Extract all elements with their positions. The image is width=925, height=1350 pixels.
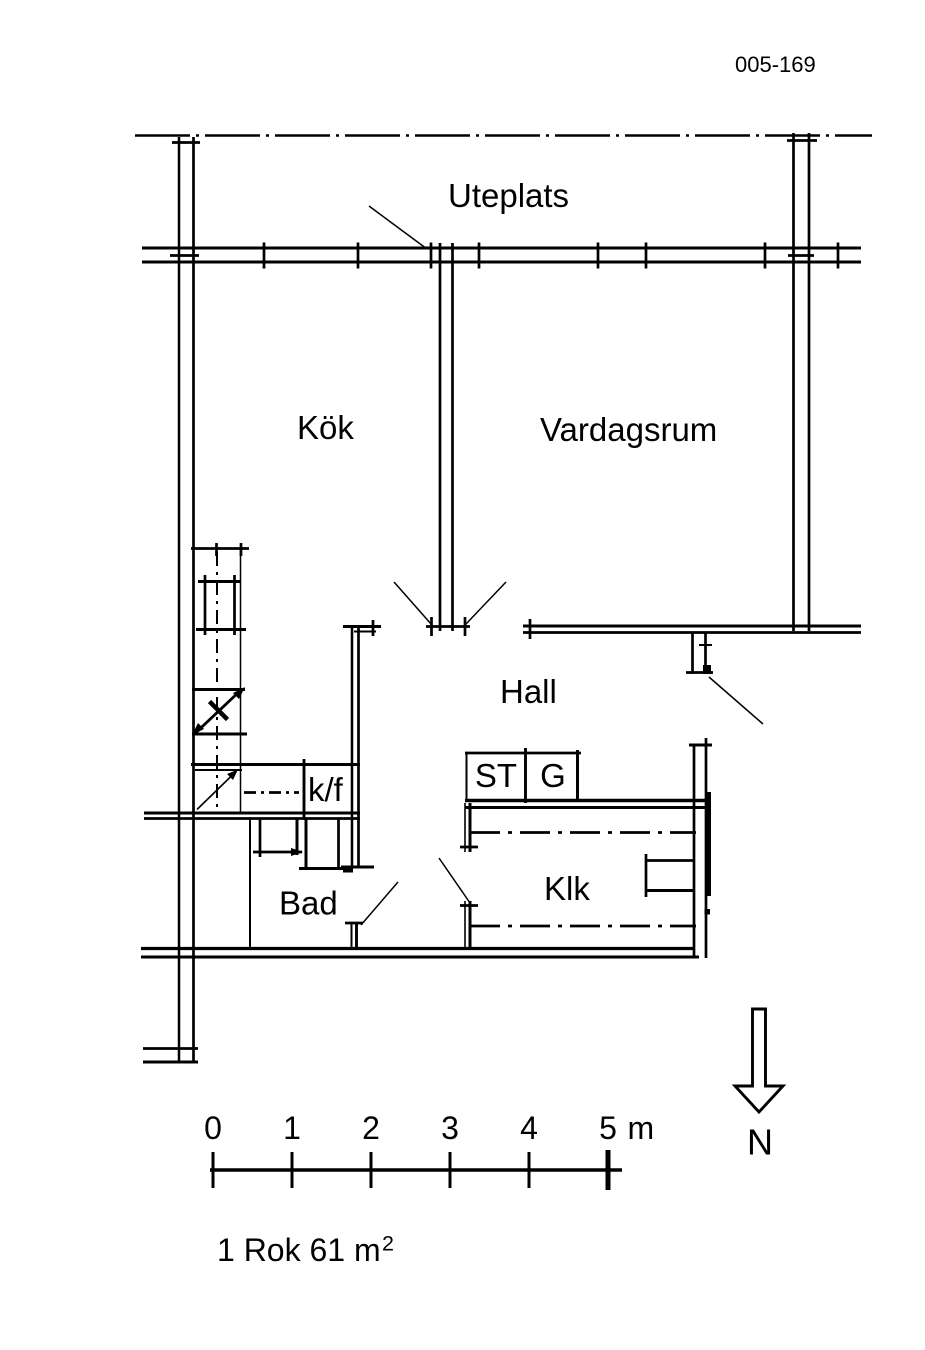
svg-text:k/f: k/f bbox=[308, 771, 344, 808]
svg-text:2: 2 bbox=[382, 1232, 394, 1256]
svg-text:3: 3 bbox=[441, 1110, 459, 1146]
svg-text:Klk: Klk bbox=[544, 870, 590, 907]
svg-text:N: N bbox=[747, 1122, 773, 1163]
svg-text:4: 4 bbox=[520, 1110, 538, 1146]
svg-text:005-169: 005-169 bbox=[735, 52, 816, 77]
svg-text:Kök: Kök bbox=[297, 409, 354, 446]
svg-text:1 Rok 61 m: 1 Rok 61 m bbox=[217, 1232, 381, 1268]
svg-text:G: G bbox=[540, 757, 566, 794]
svg-text:2: 2 bbox=[362, 1110, 380, 1146]
svg-text:Vardagsrum: Vardagsrum bbox=[540, 411, 717, 448]
svg-text:ST: ST bbox=[475, 757, 517, 794]
svg-text:5: 5 bbox=[599, 1110, 617, 1146]
svg-text:0: 0 bbox=[204, 1110, 222, 1146]
svg-text:Hall: Hall bbox=[500, 673, 557, 710]
svg-text:1: 1 bbox=[283, 1110, 301, 1146]
svg-text:Uteplats: Uteplats bbox=[448, 177, 569, 214]
svg-text:Bad: Bad bbox=[279, 885, 338, 922]
svg-text:m: m bbox=[628, 1110, 655, 1146]
